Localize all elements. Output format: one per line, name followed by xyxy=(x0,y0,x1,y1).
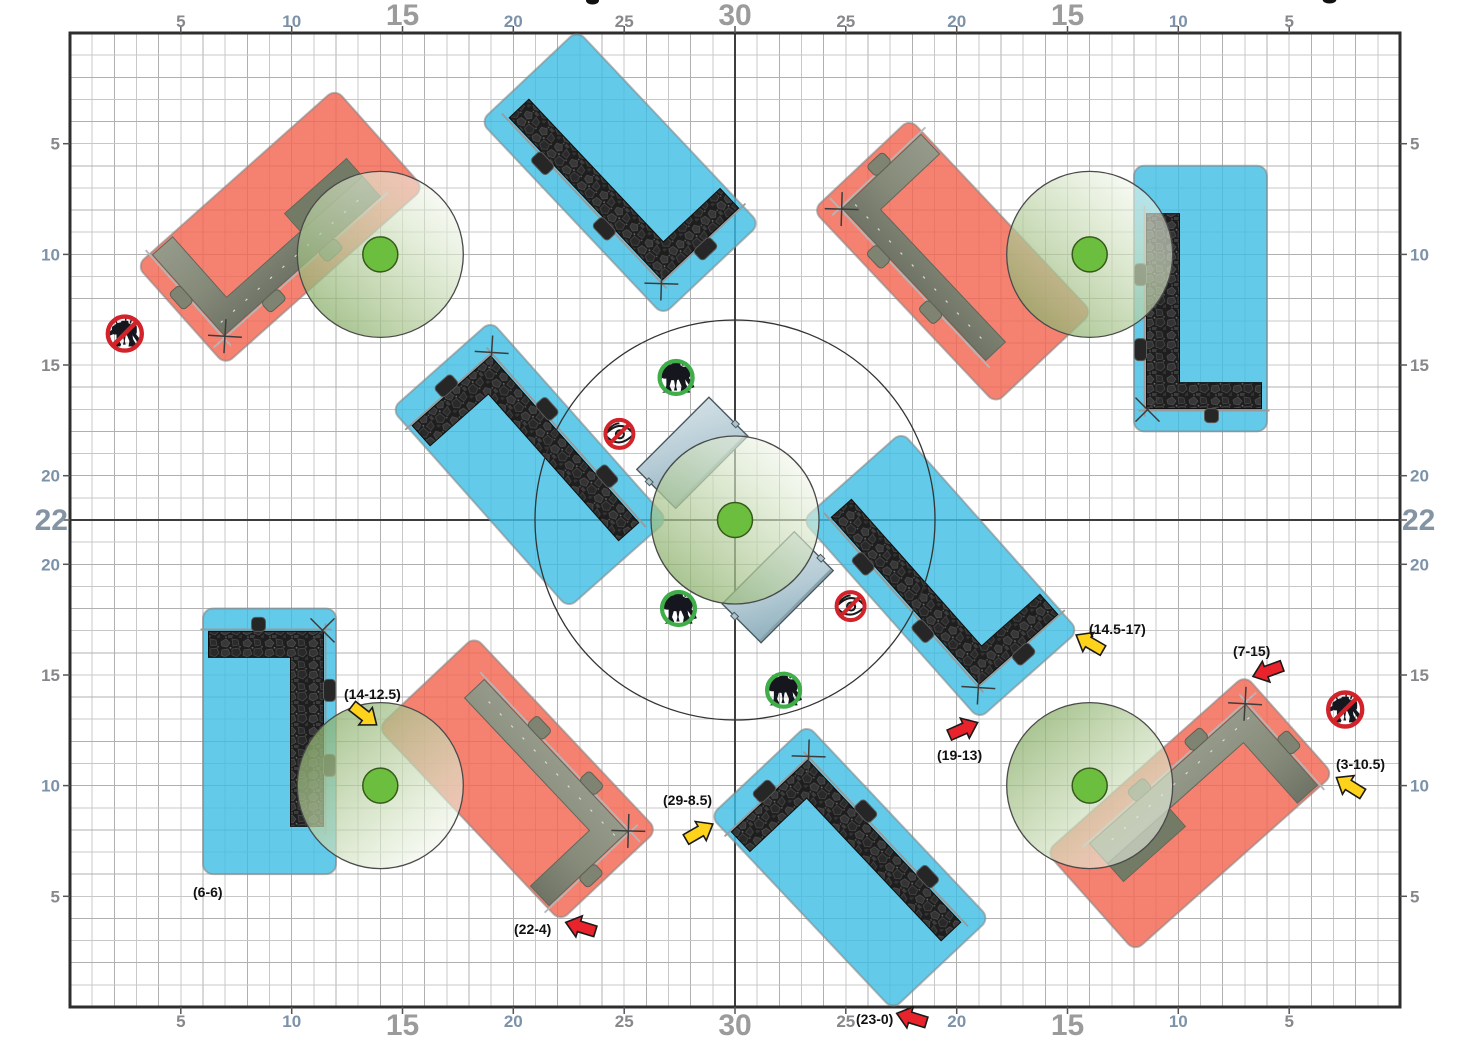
svg-text:20: 20 xyxy=(504,1012,523,1031)
svg-text:15: 15 xyxy=(386,0,419,32)
svg-text:20: 20 xyxy=(947,1012,966,1031)
svg-text:(29-8.5): (29-8.5) xyxy=(663,792,712,808)
svg-text:10: 10 xyxy=(1169,12,1188,31)
svg-text:10: 10 xyxy=(282,12,301,31)
svg-text:25: 25 xyxy=(836,12,855,31)
svg-text:10: 10 xyxy=(41,777,60,796)
svg-text:15: 15 xyxy=(41,356,60,375)
svg-text:5: 5 xyxy=(1410,887,1419,906)
svg-text:15: 15 xyxy=(1410,666,1429,685)
svg-text:(19-13): (19-13) xyxy=(937,747,982,763)
svg-text:20: 20 xyxy=(504,12,523,31)
svg-text:15: 15 xyxy=(1051,0,1084,32)
svg-text:(7-15): (7-15) xyxy=(1233,643,1270,659)
svg-text:(22-4): (22-4) xyxy=(514,921,551,937)
svg-text:15: 15 xyxy=(1410,356,1429,375)
svg-text:10: 10 xyxy=(1410,777,1429,796)
svg-text:22: 22 xyxy=(1402,504,1435,537)
svg-text:20: 20 xyxy=(1410,555,1429,574)
svg-text:5: 5 xyxy=(1410,135,1419,154)
svg-text:20: 20 xyxy=(41,467,60,486)
svg-text:(6-6): (6-6) xyxy=(193,884,223,900)
svg-text:5: 5 xyxy=(1284,1012,1293,1031)
svg-text:25: 25 xyxy=(615,12,634,31)
svg-text:(3-10.5): (3-10.5) xyxy=(1336,756,1385,772)
svg-text:20: 20 xyxy=(1410,467,1429,486)
svg-text:(23-0): (23-0) xyxy=(856,1011,893,1027)
svg-text:15: 15 xyxy=(386,1009,419,1042)
svg-text:30: 30 xyxy=(718,0,751,32)
svg-text:10: 10 xyxy=(1410,245,1429,264)
svg-text:5: 5 xyxy=(51,135,60,154)
svg-text:(14-12.5): (14-12.5) xyxy=(344,686,401,702)
svg-text:15: 15 xyxy=(41,666,60,685)
svg-text:10: 10 xyxy=(41,245,60,264)
svg-text:30: 30 xyxy=(718,1009,751,1042)
svg-text:10: 10 xyxy=(282,1012,301,1031)
svg-text:(14.5-17): (14.5-17) xyxy=(1089,621,1146,637)
svg-text:5: 5 xyxy=(1284,12,1293,31)
svg-text:25: 25 xyxy=(836,1012,855,1031)
svg-text:20: 20 xyxy=(947,12,966,31)
svg-text:5: 5 xyxy=(176,1012,185,1031)
svg-text:22: 22 xyxy=(35,504,68,537)
svg-text:5: 5 xyxy=(51,887,60,906)
svg-text:5: 5 xyxy=(176,12,185,31)
svg-text:15: 15 xyxy=(1051,1009,1084,1042)
svg-text:20: 20 xyxy=(41,555,60,574)
svg-text:25: 25 xyxy=(615,1012,634,1031)
svg-text:10: 10 xyxy=(1169,1012,1188,1031)
